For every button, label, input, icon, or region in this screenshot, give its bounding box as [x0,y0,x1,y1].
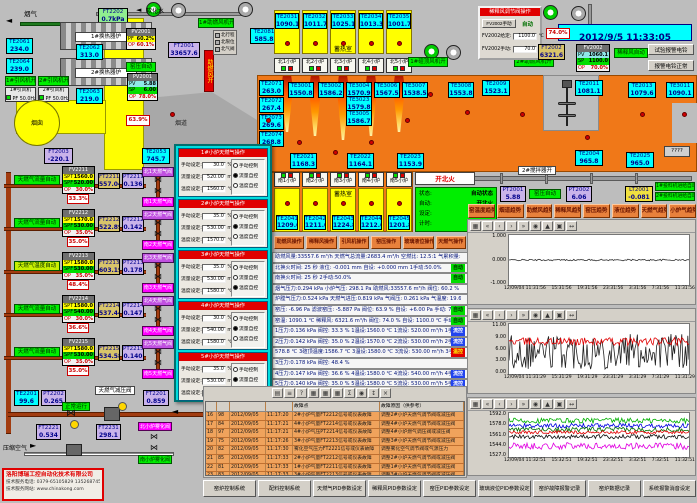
chart-toolbar-icon[interactable]: » [518,221,529,231]
south-port[interactable]: 南2小炉 [302,172,328,187]
chart-toolbar-icon[interactable]: ↔ [566,399,577,409]
red-led [400,66,405,71]
alarm-fault: 4#小炉气压PT2214信号或仪表故障 [293,429,380,437]
south-port[interactable]: 南4小炉 [358,172,384,187]
system-nav-button[interactable]: 窑炉故障报警记录 [533,480,586,497]
ops-button[interactable]: 窑压操作 [371,236,401,249]
id-fan-2-status: 2#引风机开 [38,76,69,86]
trend-button[interactable]: 窑压趋势 [583,204,610,218]
alarm-date: 2012/09/05 [230,446,266,454]
north-port[interactable]: 北3小炉 [330,58,356,73]
chart-toolbar-icon[interactable]: ▲ [542,221,553,231]
field-label: 温度设定: [181,340,202,345]
popup-title: 稀释风调节阀操作 [480,8,540,16]
radio-icon[interactable] [233,224,238,229]
radio-icon[interactable] [233,265,238,270]
alarm-date: 2012/09/05 [230,464,266,472]
sensor-tag: TE2062 [77,45,102,52]
system-nav-button[interactable]: 系统报警消音设定 [643,480,696,497]
flow-setpoint-input[interactable]: 530.00 [202,225,226,232]
field-label: 手动设定: [181,214,202,219]
chart-toolbar-icon[interactable]: ▦ [470,310,481,320]
alarm-toolbar-icon[interactable]: ◉ [356,388,367,398]
valve-icon[interactable]: ⋈ [154,273,162,281]
regen-sensor: TE20431224.8 [332,215,354,231]
alarm-row[interactable]: 21 85 2012/09/05 11:17:33 2#小炉气量FT2212信号… [206,455,464,464]
soft-water-arrow-icon: ◄ [136,6,141,14]
sensor-tag: TE2064 [7,59,32,66]
chart-toolbar-icon[interactable]: › [506,310,517,320]
dilution-fan-icon [543,5,558,20]
valve-icon[interactable]: ⋈ [150,433,158,441]
trend-button[interactable]: 小炉气趋势 [669,204,696,218]
status-text: 578.8 ℃ 3碹顶温度:1586.7 ℃ 3温设:1580.0 ℃ 3流设:… [275,348,451,357]
trend-chart-3: ▦«‹›»◉▲▣↔ 1592.01578.01561.01544.01527.0… [467,397,696,476]
alarm-row-number: 22 [206,464,217,472]
controller-row: OP78.0% [128,94,157,101]
south-regenerator-label: 蓄热室 [273,189,413,198]
radio-icon[interactable] [233,183,238,188]
sensor-pt2001: PT20015.88 [500,186,526,202]
sensor-te2053: TE2053745.7 [142,148,170,164]
regen-sensor: TE20411209.6 [276,215,298,231]
alarm-fault: 3#小炉气量FT2213信号或仪表故障 [293,472,380,476]
radio-temp-auto[interactable]: 温度自控 [233,182,263,192]
system-nav-button[interactable]: 窑炉数据记录 [588,480,641,497]
flow-setpoint-input[interactable]: 520.00 [202,174,226,181]
chart-toolbar-icon[interactable]: ‹ [494,310,505,320]
id-fan-1-status: 1#引风机开 [5,76,36,86]
sensor-te2063: TE2063219.0 [76,88,103,104]
radio-temp-auto[interactable]: 温度自控 [233,284,263,294]
valve-icon[interactable]: ⋈ [150,444,158,452]
status-text: 南换火时间: 25 秒 2手动:50.0% [275,274,351,283]
fan-icon [171,3,186,18]
status-text: 炉膛气压力:0.524 kPa 天燃气进压:0.819 kPa 气阀压: 0.2… [275,295,461,304]
valve-icon[interactable]: ⋈ [154,359,162,367]
valve-icon[interactable]: ⋈ [154,219,162,227]
red-dot [428,92,433,97]
sensor-ft2003: FT2003-220.1 [44,148,73,164]
red-dot [297,140,302,145]
field-label: 流量设定: [181,175,202,180]
trend-button[interactable]: 天燃气趋势 [641,204,668,218]
red-dot [465,110,470,115]
alarm-toolbar-icon[interactable]: ▤ [272,388,283,398]
temp-setpoint-input[interactable]: 1570.0 [202,237,226,244]
company-web: 技术服务网站: www.chinakong.com [6,486,100,493]
temp-setpoint-input[interactable]: 1580.0 [202,288,226,295]
gas-flow-controller: FV2214 SPT1580.0 SPF540.00 OP30.0% [62,295,95,323]
combustion-air-open-bar: 助燃风开 [204,50,214,92]
feeder-2-auto-status: 2#投料机进给自动 [655,192,695,201]
x-tick: 3:31:56 [629,286,646,291]
setpoint-input[interactable]: 1100.0 [513,33,537,40]
alarm-row[interactable]: 19 75 2012/09/05 11:17:26 3#小炉气量FT2213信号… [206,438,464,447]
chart-toolbar-icon[interactable]: ◉ [530,221,541,231]
chart-toolbar-icon[interactable]: ◉ [530,310,541,320]
chart-toolbar-icon[interactable]: ▣ [554,221,565,231]
mode-chip: 温控 [451,348,465,357]
trend-button[interactable]: 稀释风趋势 [554,204,581,218]
sensor-te2004: TE2004965.8 [575,150,603,166]
manual-setpoint-input[interactable]: 35.0 [202,366,226,373]
alarm-toolbar-icon[interactable]: ▦ [332,388,343,398]
valve-icon[interactable]: ⋈ [66,410,76,418]
x-tick: 23:32:51 [603,458,623,463]
fan-icon [446,45,461,60]
system-nav-button[interactable]: 玻璃液位PID参数设定 [478,480,531,497]
red-dot [369,140,374,145]
sensor-tag: FT2202 [99,9,127,16]
trend-button[interactable]: 液位趋势 [612,204,639,218]
trend-button[interactable]: 烟道趋势 [497,204,524,218]
y-tick: 1578.0 [489,422,506,427]
gas-loop: 天燃气温度自动 FV2213 SPT1580.0 SPF530.00 OP35.… [4,252,176,295]
chart-toolbar-icon[interactable]: « [482,399,493,409]
chart-toolbar-icon[interactable]: ▦ [470,221,481,231]
sensor-lt2001: LT2001-0.081 [625,186,653,202]
north-regenerator-label: 蓄热室 [273,44,413,53]
radio-manual[interactable]: 手动控制 [233,315,263,325]
port-leds [275,66,299,71]
burner-panel-title: 2#小炉天燃气操作 [179,200,267,208]
alarm-toolbar-icon[interactable]: ▦ [320,388,331,398]
alarm-date: 2012/09/05 [230,412,266,420]
temp-setpoint-input[interactable]: 1560.0 [202,186,226,193]
burner-panel: 1#小炉天燃气操作 手动设定:30.0 % 流量设定:520.00 m³/h 温… [178,148,268,197]
chart-toolbar-icon[interactable]: ▣ [554,310,565,320]
controller-row: OP35.0% [63,273,94,280]
alarm-row[interactable]: 20 82 2012/09/05 11:17:30 雾化空气压力FT2221信号… [206,446,464,455]
chart-toolbar-icon[interactable]: « [482,221,493,231]
chart-toolbar-icon[interactable]: ‹ [494,399,505,409]
south-port[interactable]: 南1小炉 [274,172,300,187]
alarm-row-number: 23 [206,472,217,476]
x-tick: 11:32:51 [675,458,695,463]
red-led [316,66,321,71]
controller-row: OP60.1% [127,42,155,49]
alarm-date: 2012/09/05 [230,438,266,446]
manual-setpoint-input[interactable]: 35.0 [202,264,226,271]
flow-sensor: FT2211557.04 [98,173,120,189]
radio-flow-auto[interactable]: 流量自控 [233,274,263,284]
gas-mode-label: 天燃气流量自动 [14,304,60,314]
chimney: 烟囱 [14,100,60,146]
alarm-row-number: 16 [206,412,217,420]
alarm-cause: 调整3#小炉天燃气调节阀或减压阀 [380,438,464,446]
y-axis-labels: 11.009.006.003.000.00 [468,323,508,375]
soft-water-label: 软化水 [146,6,164,15]
valve-icon[interactable]: ⋈ [154,187,162,195]
radio-flow-auto[interactable]: 流量自控 [233,223,263,233]
alarm-col-cause: 故障原因（供参考） [380,402,464,411]
sensor-te2009: TE20091523.1 [482,80,510,96]
y-tick: 3.00 [495,358,506,363]
radio-manual[interactable]: 手动控制 [233,162,263,172]
chart-toolbar-icon[interactable]: « [482,310,493,320]
crown-fan-status: 1#碹顶风机开 [408,57,448,67]
valve-position: 48.4% [67,280,89,290]
radio-icon[interactable] [233,326,238,331]
dilution-valve-popup: 稀释风调节阀操作 FV2002手动 自动 FV2002给定: 1100.0 ℃ … [478,6,542,60]
south-gas-valve-label: 南2天燃气阀 [142,240,174,250]
y-tick: 11.00 [492,323,506,328]
radio-temp-auto[interactable]: 温度自控 [233,335,263,345]
red-dot [285,201,290,206]
alarm-toolbar-icon[interactable]: ≡ [284,388,295,398]
north-port[interactable]: 北2小炉 [302,58,328,73]
flow-setpoint-input[interactable]: 540.00 [202,327,226,334]
alarm-toolbar: ▤≡?▦▦▦Σ◉↕× [272,388,391,398]
chart-toolbar-icon[interactable]: › [506,221,517,231]
chart-toolbar-icon[interactable]: ▣ [554,399,565,409]
furnace-notch [672,103,697,143]
status-lines: 助燃风量:33557.6 m³/h 天燃气总流量:2683.4 m³/h 空燃比… [272,252,468,390]
status-line: 窑压: -6.96 Pa 滤波窑压: -5.887 Pa 阀位: 63.9 % … [272,305,468,316]
mode-chip [461,253,465,262]
radio-icon[interactable] [233,214,238,219]
ops-button[interactable]: 玻璃液位操作 [403,236,433,249]
alarm-fault: 4#小炉气量FT2214信号或仪表故障 [293,421,380,429]
sensor-tag: TE2063 [77,89,102,96]
red-dot [170,112,175,117]
valve-icon[interactable]: ⋈ [154,262,162,270]
ops-button[interactable]: 引风机操作 [339,236,369,249]
system-nav-button[interactable]: 窑压PID参数设定 [423,480,476,497]
alarm-row-number: 18 [206,429,217,437]
x-tick: 7:31:56 [652,286,669,291]
north-port[interactable]: 北1小炉 [274,58,300,73]
radio-flow-auto[interactable]: 流量自控 [233,325,263,335]
radio-icon[interactable] [233,234,238,239]
alarm-cause: 调整1#小炉天燃气调节阀或减压阀 [380,464,464,472]
alarm-toolbar-icon[interactable]: × [380,388,391,398]
chart-toolbar-icon[interactable]: ↔ [566,221,577,231]
y-tick: 1.000 [492,234,506,239]
mode-chip: 自动 [451,264,465,273]
sensor-value: 219.0 [77,96,102,103]
status-line: 3压力:0.178 kPa 阀控: 48.4 % [272,358,468,369]
status-text: 4压力:0.147 kPa 阀控: 36.6 % 4温设:1580.0 ℃ 4流… [275,370,451,379]
flow-sensor: FT2215534.58 [98,345,120,361]
south-gas-valve-label: 南3天燃气阀 [142,283,174,293]
flow-setpoint-input[interactable]: 530.00 [202,378,226,385]
valve-position: 33.3% [67,194,89,204]
mode-chip [461,295,465,304]
status-text: 烟气压力:0.294 kPa 小炉气压: 298.1 Pa 助燃风:33557.… [275,285,461,294]
mode-radio-group: 手动控制 流量自控 温度自控 [231,261,265,297]
regen-sensor: TE20351001.7 [387,13,411,29]
radio-manual[interactable]: 手动控制 [233,213,263,223]
alarm-row[interactable]: 17 84 2012/09/05 11:17:21 4#小炉气量FT2214信号… [206,421,464,430]
pressure-sensor: PT22140.147 [122,302,144,318]
chart-toolbar-icon[interactable]: » [518,310,529,320]
trend-button[interactable]: 助燃风趋势 [526,204,553,218]
red-led [288,66,293,71]
ops-button[interactable]: 稀释风操作 [306,236,336,249]
y-tick: 6.00 [495,347,506,352]
red-dot [682,112,687,117]
dilution-auto-status: 稀释风自动 [614,48,648,58]
sensor-tag: TE2053 [143,149,169,156]
bell-test-button[interactable]: 试验报警电铃 [648,44,694,55]
trend-button-row: 窑温度趋势烟道趋势助燃风趋势稀释风趋势窑压趋势液位趋势天燃气趋势小炉气趋势 [468,204,696,218]
flue-gas-label: 烟气 [24,8,37,18]
field-label: 手动设定: [181,367,202,372]
sensor-te2021: TE20211168.3 [290,153,317,169]
green-led [281,66,286,71]
valve-icon[interactable]: ⋈ [154,316,162,324]
manual-setpoint-input[interactable]: 30.0 [202,315,226,322]
alarm-row[interactable]: 16 98 2012/09/05 11:17:20 2#小炉气量FT2212信号… [206,412,464,421]
radio-flow-auto[interactable]: 流量自控 [233,376,263,386]
ops-button[interactable]: 助燃风操作 [274,236,304,249]
status-line: 1压力:0.136 kPa 阀控: 33.3 % 1温设:1560.0 ℃ 1流… [272,326,468,337]
alarm-fault: 雾化空气压力FT2221信号或仪表故障 [293,446,380,454]
chart-toolbar-icon[interactable]: › [506,399,517,409]
alarm-toolbar-icon[interactable]: Σ [344,388,355,398]
alarm-col-fault: 故障点 [293,402,380,411]
red-dot [520,112,525,117]
sensor-te2022: TE20221164.1 [347,153,374,169]
status-line: 578.8 ℃ 3碹顶温度:1586.7 ℃ 3温设:1580.0 ℃ 3流设:… [272,347,468,358]
radio-icon[interactable] [233,173,238,178]
alarm-id: 85 [217,455,230,463]
manual-input[interactable]: 70.0 [513,46,537,53]
radio-icon[interactable] [233,367,238,372]
x-axis-labels: 12/09/04 11:32:5115:32:5119:32:5123:32:5… [468,458,695,463]
legend-swatch [215,33,220,38]
chart-toolbar-icon[interactable]: » [518,399,529,409]
alarm-header-row: 故障点 故障原因（供参考） [206,402,464,412]
stirrer-shaft [566,88,568,126]
status-line: 4压力:0.147 kPa 阀控: 36.6 % 4温设:1580.0 ℃ 4流… [272,369,468,380]
mode-chip: 自动 [451,274,465,283]
field-label: 温度设定: [181,187,202,192]
system-nav-button[interactable]: 天燃气PID参数设定 [313,480,366,497]
bell-normal-button[interactable]: 报警电铃正常 [648,60,694,71]
radio-icon[interactable] [233,285,238,290]
alarm-row[interactable]: 18 97 2012/09/05 11:17:21 4#小炉气压PT2214信号… [206,429,464,438]
port-label: 南4小炉 [359,178,383,185]
alarm-time: 11:17:30 [266,446,293,454]
valve-icon[interactable]: ⋈ [154,230,162,238]
radio-manual[interactable]: 手动控制 [233,264,263,274]
flue-damper-position: 63.9% [126,115,150,126]
trend-button[interactable]: 窑温度趋势 [468,204,495,218]
legend-item: 北限位 [215,39,235,46]
valve-icon[interactable]: ⋈ [154,176,162,184]
system-nav-button[interactable]: 窑炉控制系统 [203,480,256,497]
field-label: 温度设定: [181,391,202,396]
chart-toolbar-icon[interactable]: ▦ [470,399,481,409]
mode-chip: 自动 [451,306,465,315]
radio-icon[interactable] [233,316,238,321]
alarm-date: 2012/09/05 [230,429,266,437]
alarm-row[interactable]: 23 83 2012/09/05 11:17:33 3#小炉气量FT2213信号… [206,472,464,476]
alarm-toolbar-icon[interactable]: ? [296,388,307,398]
scada-screen: 烟道 ◄ 烟气 FT22020.7kPa ◄ 软化水 1#换热器炉 2#换热器炉… [0,0,697,503]
chart-toolbar: ▦«‹›»◉▲▣↔ [468,398,695,411]
chart-toolbar-icon[interactable]: ↔ [566,310,577,320]
north-furnace-row: 北1小炉 北2小炉 北3小炉 北4小炉 北5小炉 [273,58,413,73]
alarm-rows: 16 98 2012/09/05 11:17:20 2#小炉气量FT2212信号… [206,412,464,476]
chart-toolbar-icon[interactable]: ‹ [494,221,505,231]
alarm-id: 83 [217,472,230,476]
ops-button[interactable]: 天燃气操作 [436,236,466,249]
gas-loop: 天燃气流量自动 FV2211 SPT1560.0 SPF520.00 OP30.… [4,166,176,209]
system-nav-button[interactable]: 稀释风PID参数设定 [368,480,421,497]
radio-icon[interactable] [233,163,238,168]
trend-chart-2: ▦«‹›»◉▲▣↔ 11.009.006.003.000.00 12/09/04… [467,308,696,394]
system-nav-button[interactable]: 配料控制系统 [258,480,311,497]
gas-loop: 天燃气流量自动 FV2215 SPT1580.0 SPF530.00 OP35.… [4,338,176,381]
alarm-toolbar-icon[interactable]: ▦ [308,388,319,398]
chart-toolbar-icon[interactable]: ▲ [542,399,553,409]
radio-manual[interactable]: 手动控制 [233,366,263,376]
manual-setpoint-input[interactable]: 35.0 [202,213,226,220]
radio-temp-auto[interactable]: 温度自控 [233,233,263,243]
status-text: 北换火时间: 25 秒 液位: -0.001 mm 自设: +0.000 mm … [275,264,442,273]
x-tick: 3:32:51 [629,458,646,463]
red-led [372,66,377,71]
flow-setpoint-input[interactable]: 530.00 [202,276,226,283]
valve-icon[interactable]: ⋈ [154,305,162,313]
alarm-row-number: 20 [206,446,217,454]
x-tick: 12/09/04 11:31:29 [504,375,546,380]
status-line: 窑温: 1090.1 ℃ 稀释风: 6321.6 m³/h 阀位: 74.0 %… [272,316,468,327]
sensor-value: 313.0 [77,52,102,59]
green-led [337,66,342,71]
alarm-row[interactable]: 22 81 2012/09/05 11:17:33 1#小炉气量FT2211信号… [206,464,464,473]
alarm-cause: 调整3#小炉天燃气调节阀或减压阀 [380,472,464,476]
radio-icon[interactable] [233,275,238,280]
controller-row: OP70.0% [577,65,609,72]
combustion-fan-1-status: 1#助燃风机开 [198,18,234,28]
south-port[interactable]: 南5小炉 [386,172,412,187]
datetime: 2012/9/5 11:33:05 [579,33,671,43]
chart-toolbar-icon[interactable]: ◉ [530,399,541,409]
alarm-id: 84 [217,421,230,429]
chart-toolbar-icon[interactable]: ▲ [542,310,553,320]
radio-icon[interactable] [233,377,238,382]
field-label: 温度设定: [181,238,202,243]
south-atomizing-valve-label: 南小炉雾化阀 [138,455,172,464]
trend-chart-1: ▦«‹›»◉▲▣↔ 1.0000.000-1.000 12/09/04 11:3… [467,219,696,305]
burner-panel: 2#小炉天燃气操作 手动设定:35.0 % 流量设定:530.00 m³/h 温… [178,199,268,248]
status-text: 助燃风量:33557.6 m³/h 天燃气总流量:2683.4 m³/h 空燃比… [275,253,461,262]
south-port[interactable]: 南3小炉 [330,172,356,187]
dilution-manual-button[interactable]: FV2002手动 [482,19,516,28]
pressure-sensor: PT22150.140 [122,345,144,361]
alarm-toolbar-icon[interactable]: ↕ [368,388,379,398]
sensor-te2064: TE2064239.0 [6,58,33,74]
radio-flow-auto[interactable]: 流量自控 [233,172,263,182]
valve-icon[interactable]: ⋈ [154,348,162,356]
north-port[interactable]: 北4小炉 [358,58,384,73]
status-line: 南换火时间: 25 秒 2手动:50.0%自动 [272,273,468,284]
status-text: 3压力:0.178 kPa 阀控: 48.4 % [275,359,350,368]
field-label: 流量设定: [181,328,202,333]
port-label: 南2小炉 [303,178,327,185]
manual-setpoint-input[interactable]: 30.0 [202,162,226,169]
air-flow-meter [66,444,82,456]
sensor-tag: FT2003 [45,149,72,156]
radio-icon[interactable] [233,336,238,341]
flue-damper-controller: PV2001 PF60.2% OP60.1% [126,28,156,50]
temp-setpoint-input[interactable]: 1580.0 [202,339,226,346]
